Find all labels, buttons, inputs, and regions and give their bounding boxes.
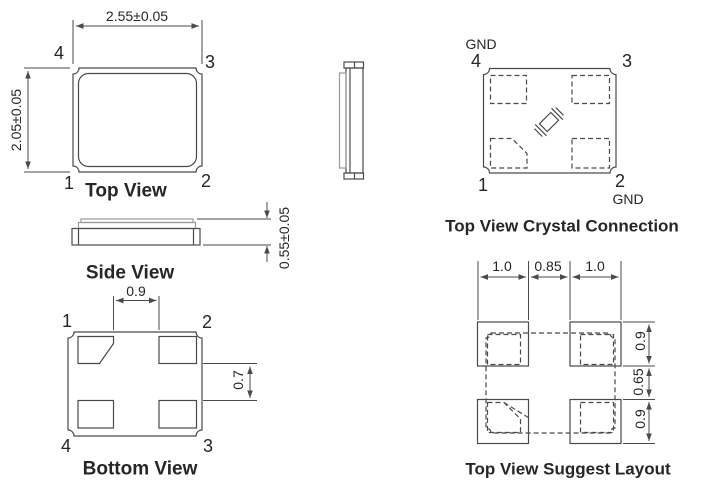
side-view-dimension-lines [197, 202, 271, 262]
top-view-pin-3: 3 [205, 53, 215, 71]
top-view-title: Top View [85, 182, 167, 201]
crystal-connection-pin-1: 1 [478, 176, 488, 194]
suggest-layout-footprint [486, 333, 615, 433]
layout-vertical-gap-dimension: 0.65 [631, 368, 645, 395]
crystal-connection-pin-4: 4 [471, 52, 481, 70]
pad-3 [159, 401, 197, 429]
bottom-view-vertical-gap-dimension: 0.7 [231, 370, 245, 389]
suggest-layout-dimension-lines [478, 261, 655, 444]
side-view-title: Side View [86, 264, 174, 283]
bottom-view-pin-3: 3 [203, 437, 213, 455]
top-view-height-dimension: 2.05±0.05 [9, 89, 23, 151]
crystal-package-datasheet-drawing: 2.55±0.05 2.05±0.05 4 3 1 2 Top View 0.5… [0, 0, 719, 494]
layout-pad-height-bottom-dimension: 0.9 [633, 409, 647, 428]
drawing-canvas [0, 0, 719, 494]
pad-2 [159, 337, 197, 364]
top-view-outline [73, 68, 202, 172]
suggest-layout-pads [478, 322, 622, 444]
pad-1-chamfered [78, 337, 114, 364]
top-view-width-dimension: 2.55±0.05 [106, 9, 168, 23]
bottom-view-title: Bottom View [83, 460, 198, 479]
layout-pad-width-right-dimension: 1.0 [585, 259, 604, 273]
crystal-symbol [533, 106, 566, 139]
crystal-connection-outline [484, 69, 617, 174]
layout-pad-width-left-dimension: 1.0 [492, 259, 511, 273]
bottom-view-outline [68, 332, 202, 436]
pad-4 [78, 401, 114, 429]
top-view-pin-2: 2 [201, 172, 211, 190]
top-view-pin-1: 1 [64, 174, 74, 192]
crystal-connection-pads [491, 76, 610, 169]
bottom-view-pin-1: 1 [62, 312, 72, 330]
gnd-label-top: GND [465, 37, 496, 51]
end-view-outline [340, 62, 364, 179]
layout-pad-height-top-dimension: 0.9 [633, 331, 647, 350]
top-view-pin-4: 4 [54, 44, 64, 62]
crystal-connection-pin-3: 3 [622, 52, 632, 70]
crystal-connection-title: Top View Crystal Connection [445, 218, 679, 235]
side-view-height-dimension: 0.55±0.05 [277, 207, 291, 269]
side-view-outline [72, 219, 200, 245]
bottom-view-pin-4: 4 [61, 437, 71, 455]
crystal-connection-pin-2: 2 [615, 172, 625, 190]
top-view-dimension-lines [24, 20, 202, 172]
bottom-view-pin-2: 2 [202, 313, 212, 331]
layout-pad-gap-dimension: 0.85 [534, 259, 561, 273]
suggest-layout-title: Top View Suggest Layout [465, 461, 670, 478]
gnd-label-bottom: GND [612, 192, 643, 206]
bottom-view-horizontal-gap-dimension: 0.9 [126, 284, 145, 298]
